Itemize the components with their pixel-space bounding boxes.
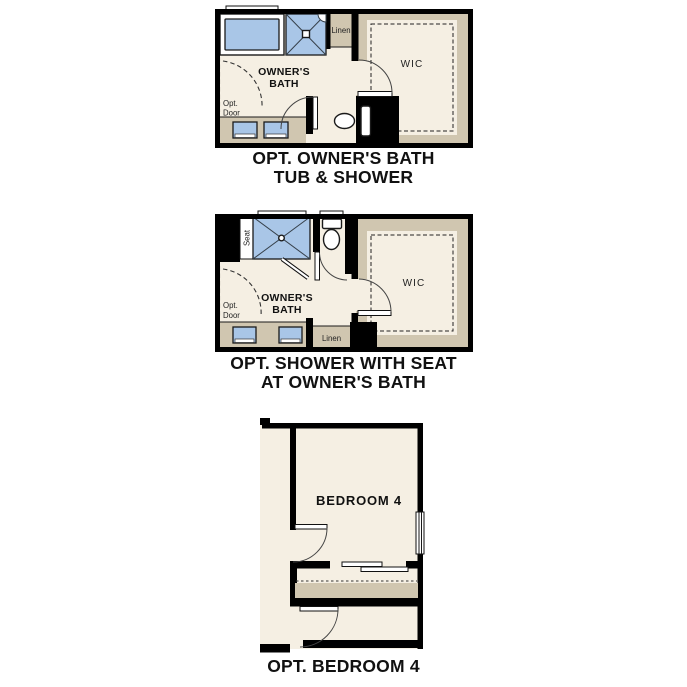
toilet (323, 219, 342, 250)
caption-line: OPT. SHOWER WITH SEAT (0, 354, 687, 373)
window (416, 512, 424, 554)
linen-closet: Linen (331, 11, 352, 47)
plan2-caption: OPT. SHOWER WITH SEAT AT OWNER'S BATH (0, 354, 687, 391)
plan1-caption: OPT. OWNER'S BATH TUB & SHOWER (0, 149, 687, 186)
plan3-caption: OPT. BEDROOM 4 (0, 657, 687, 676)
svg-text:OWNER'S: OWNER'S (258, 66, 310, 78)
sliding-door (342, 562, 382, 567)
wic-doorway (356, 61, 367, 95)
opt-door-label: Door (223, 109, 240, 118)
shower-drain (303, 31, 310, 38)
floorplan-sheet: WIC Linen (0, 0, 687, 687)
floorplan-shower-with-seat: WIC Seat (215, 214, 473, 352)
seat-label: Seat (243, 229, 252, 246)
room-label: BEDROOM 4 (316, 493, 402, 508)
sink (264, 122, 288, 138)
linen-label: Linen (331, 26, 350, 35)
floorplan-bedroom-4: BEDROOM 4 (258, 418, 432, 654)
linen-label: Linen (322, 334, 341, 343)
sliding-door (361, 567, 408, 572)
opt-door-label: Opt. (223, 99, 238, 108)
caption-line: AT OWNER'S BATH (0, 373, 687, 392)
opt-door-label: Door (223, 311, 240, 320)
vanity (219, 117, 306, 144)
closet-shelf (295, 583, 418, 598)
svg-text:BATH: BATH (272, 304, 302, 316)
bedroom-floor (260, 423, 422, 649)
svg-text:BATH: BATH (269, 78, 299, 90)
wic-label: WIC (403, 278, 426, 289)
shower (286, 14, 326, 55)
bathtub (220, 14, 284, 55)
caption-line: OPT. BEDROOM 4 (0, 657, 687, 676)
vanity (219, 322, 306, 350)
wic-doorway (356, 279, 367, 311)
sink (279, 327, 302, 343)
caption-line: OPT. OWNER'S BATH (0, 149, 687, 168)
opt-door-label: Opt. (223, 301, 238, 310)
sink (233, 327, 256, 343)
wic-label: WIC (401, 59, 424, 70)
shower-drain (279, 235, 285, 241)
svg-text:OWNER'S: OWNER'S (261, 292, 313, 304)
linen-closet: Linen (313, 326, 350, 350)
shower: Seat (240, 217, 310, 259)
floorplan-owners-bath-tub-shower: WIC Linen (215, 9, 473, 148)
sink (233, 122, 257, 138)
caption-line: TUB & SHOWER (0, 168, 687, 187)
